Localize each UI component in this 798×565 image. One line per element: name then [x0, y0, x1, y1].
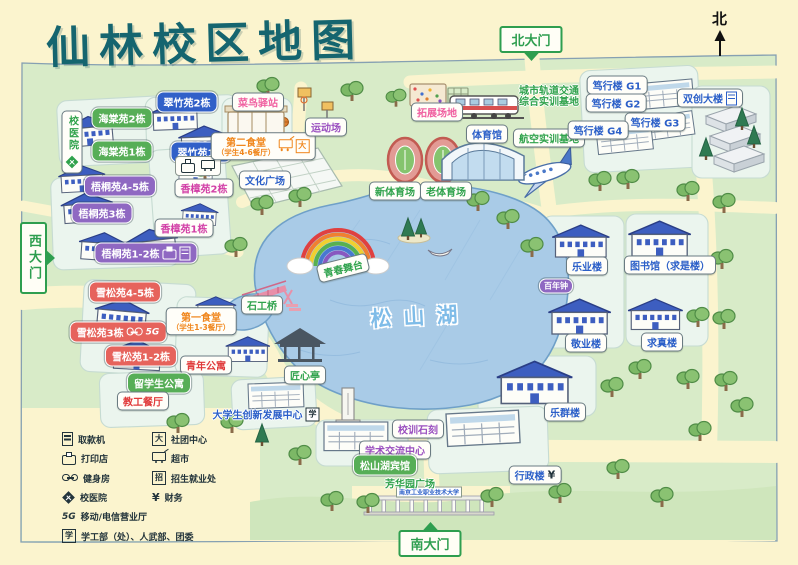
innovation-center-label: 大学生创新发展中心学 — [213, 407, 320, 422]
label-text: 松山湖宾馆 — [360, 458, 410, 473]
label-text: 校医院 — [65, 116, 80, 152]
admin-building-label: 行政楼¥ — [509, 466, 562, 485]
haitang-1-label: 海棠苑1栋 — [92, 141, 153, 162]
cart-icon — [278, 140, 292, 149]
xue-icon: 学 — [306, 407, 320, 421]
label-text: 新体育场 — [375, 184, 415, 199]
legend-label: 健身房 — [83, 472, 110, 485]
legend-label: 招生就业处 — [171, 472, 216, 485]
label-text: 菜鸟驿站 — [238, 95, 278, 110]
xiangzhang-2-label: 香樟苑2栋 — [175, 179, 234, 198]
printer-icon — [181, 163, 195, 173]
map-title: 仙林校区地图 — [45, 4, 365, 76]
wutong-12-label: 梧桐苑1-2栋 — [94, 243, 197, 264]
sports-ground-label: 运动场 — [305, 118, 347, 137]
rail-transit-base-label: 城市轨道交通综合实训基地 — [519, 82, 579, 109]
legend-item: 学学工部（处）、人武部、团委 — [62, 529, 262, 543]
label-text: 大学生创新发展中心 — [213, 407, 303, 422]
legend-item: 招招生就业处 — [152, 471, 262, 485]
xuesong-3-label: 雪松苑3栋5G — [70, 322, 167, 343]
label-text: 老体育场 — [426, 184, 466, 199]
legend-item: 超市 — [152, 452, 262, 465]
expansion-field-label: 拓展场地 — [411, 103, 463, 122]
label-text: 笃行楼 G2 — [592, 96, 641, 111]
west-gate: 西大门 — [20, 222, 47, 294]
gym-icon — [62, 474, 78, 483]
cart-icon — [201, 160, 215, 169]
gym-icon — [127, 328, 143, 337]
label-text: 笃行楼 G3 — [631, 115, 680, 130]
label-text: 图书馆（求是楼） — [630, 258, 710, 273]
label-text: 双创大楼 — [683, 91, 723, 106]
label-text: 教工餐厅 — [123, 394, 163, 409]
label-text: 留学生公寓 — [134, 376, 184, 391]
fiveg-icon: 5G — [146, 327, 160, 337]
club-icon: 大 — [152, 432, 166, 446]
new-stadium-label: 新体育场 — [369, 182, 421, 201]
label-text: 青春舞台 — [322, 256, 364, 280]
intl-student-dorm-label: 留学生公寓 — [127, 373, 191, 394]
gym-hall-label: 体育馆 — [466, 125, 508, 144]
xuesong-12-label: 雪松苑1-2栋 — [105, 346, 177, 367]
printer-icon — [163, 250, 177, 260]
legend-label: 移动/电信营业厅 — [81, 510, 147, 523]
duxing-g2-label: 笃行楼 G2 — [586, 94, 647, 113]
label-text: 香樟苑1栋 — [161, 221, 208, 236]
label-subtext: 综合实训基地 — [519, 97, 579, 109]
recruit-icon: 招 — [152, 471, 166, 485]
cainiao-station-label: 菜鸟驿站 — [232, 93, 284, 112]
songshanhu-hotel-label: 松山湖宾馆 — [353, 455, 417, 476]
library-label: 图书馆（求是楼） — [624, 256, 716, 275]
label-subtext: （学生4-6餐厅） — [217, 149, 276, 158]
north-arrow-icon — [714, 30, 726, 56]
canteen-2-label: 第二食堂（学生4-6餐厅）大 — [211, 132, 316, 160]
north-gate: 北大门 — [499, 26, 562, 53]
label-text: 笃行楼 G4 — [574, 123, 623, 138]
shigong-bridge-label: 石工桥 — [241, 296, 283, 315]
label-text: 运动场 — [311, 120, 341, 135]
shuangchuang-building-label: 双创大楼 — [677, 89, 743, 108]
label-text: 行政楼 — [515, 468, 545, 483]
xiangzhang-1-label: 香樟苑1栋 — [155, 219, 214, 238]
compass-north-label: 北 — [712, 8, 727, 29]
label-text: 石工桥 — [247, 298, 277, 313]
label-text: 笃行楼 G1 — [593, 78, 642, 93]
duxing-g3-label: 笃行楼 G3 — [625, 113, 686, 132]
legend-label: 打印店 — [81, 452, 108, 465]
staff-canteen-label: 教工餐厅 — [117, 392, 169, 411]
old-stadium-label: 老体育场 — [420, 182, 472, 201]
hospital-label: 校医院 — [62, 111, 83, 174]
cuizhu-2-label: 翠竹苑2栋 — [157, 92, 218, 113]
legend-label: 超市 — [171, 452, 189, 465]
map-legend: 取款机大社团中心打印店超市健身房招招生就业处校医院¥财务5G移动/电信营业厅学学… — [62, 432, 262, 543]
jiangxin-pavilion-label: 匠心亭 — [284, 366, 326, 385]
culture-square-label: 文化广场 — [239, 171, 291, 190]
label-text: 翠竹苑2栋 — [164, 95, 211, 110]
legend-item: 校医院 — [62, 491, 148, 504]
label-text: 求真楼 — [647, 335, 677, 350]
duxing-g4-label: 笃行楼 G4 — [568, 121, 629, 140]
legend-label: 取款机 — [78, 433, 105, 446]
campus-map: 仙林校区地图 松山湖 北大门 西大门 南大门 北 南京工业职业技术大学 海棠苑2… — [0, 0, 798, 565]
wutong-3-label: 梧桐苑3栋 — [72, 203, 133, 224]
west-gate-label: 西大门 — [26, 234, 41, 282]
club-icon: 大 — [295, 139, 309, 153]
legend-label: 社团中心 — [171, 433, 207, 446]
label-text: 乐业楼 — [572, 259, 602, 274]
hospital-icon — [62, 491, 75, 504]
label-text: 海棠苑1栋 — [99, 144, 146, 159]
legend-item: 健身房 — [62, 471, 148, 485]
label-text: 城市轨道交通 — [519, 82, 579, 97]
south-gate: 南大门 — [398, 530, 461, 557]
atm-icon — [726, 91, 737, 105]
bainianzhong-label: 百年钟 — [539, 279, 573, 294]
label-text: 百年钟 — [544, 281, 568, 292]
wutong-45-label: 梧桐苑4-5栋 — [84, 176, 156, 197]
label-text: 敬业楼 — [571, 336, 601, 351]
label-text: 匠心亭 — [290, 368, 320, 383]
label-text: 雪松苑1-2栋 — [112, 349, 170, 364]
label-text: 芳华园广场 — [385, 476, 435, 491]
leye-building-label: 乐业楼 — [566, 257, 608, 276]
atm-icon — [180, 246, 191, 260]
legend-item: ¥财务 — [152, 491, 262, 504]
youth-stage-label: 青春舞台 — [315, 252, 370, 283]
south-gate-label: 南大门 — [410, 538, 449, 553]
label-text: 香樟苑2栋 — [181, 181, 228, 196]
legend-item: 打印店 — [62, 452, 148, 465]
xue-icon: 学 — [62, 529, 76, 543]
jingye-building-label: 敬业楼 — [565, 334, 607, 353]
label-text: 雪松苑3栋 — [77, 325, 124, 340]
label-text: 海棠苑2栋 — [99, 111, 146, 126]
fanghua-square-label: 芳华园广场 — [385, 476, 435, 491]
youth-apartment-label: 青年公寓 — [180, 356, 232, 375]
label-text: 第一食堂 — [181, 309, 221, 324]
legend-item: 大社团中心 — [152, 432, 262, 446]
label-subtext: （学生1-3餐厅） — [172, 324, 231, 333]
cart-icon — [152, 452, 166, 461]
legend-item: 取款机 — [62, 432, 148, 446]
legend-item: 5G移动/电信营业厅 — [62, 510, 262, 523]
xuesong-45-label: 雪松苑4-5栋 — [89, 282, 161, 303]
duxing-g1-label: 笃行楼 G1 — [587, 76, 648, 95]
motto-stone-label: 校训石刻 — [392, 420, 444, 439]
canteen-1-label: 第一食堂（学生1-3餐厅） — [166, 307, 237, 335]
label-text: 梧桐苑1-2栋 — [101, 246, 159, 261]
label-text: 梧桐苑3栋 — [79, 206, 126, 221]
label-text: 体育馆 — [472, 127, 502, 142]
atm-icon — [62, 432, 73, 446]
label-text: 青年公寓 — [186, 358, 226, 373]
label-text: 第二食堂 — [226, 134, 266, 149]
haitang-2-label: 海棠苑2栋 — [92, 108, 153, 129]
label-text: 校训石刻 — [398, 422, 438, 437]
label-text: 拓展场地 — [417, 105, 457, 120]
lequn-building-label: 乐群楼 — [544, 403, 586, 422]
fiveg-icon: 5G — [62, 512, 76, 522]
legend-label: 校医院 — [80, 491, 107, 504]
finance-icon: ¥ — [152, 491, 160, 504]
qiuzhen-building-label: 求真楼 — [641, 333, 683, 352]
label-text: 乐群楼 — [550, 405, 580, 420]
hospital-icon — [66, 156, 79, 169]
label-text: 文化广场 — [245, 173, 285, 188]
finance-icon: ¥ — [548, 469, 556, 482]
legend-label: 财务 — [165, 491, 183, 504]
north-gate-label: 北大门 — [511, 34, 550, 49]
label-text: 雪松苑4-5栋 — [96, 285, 154, 300]
printer-icon — [62, 455, 76, 465]
legend-label: 学工部（处）、人武部、团委 — [81, 530, 194, 543]
compass: 北 — [712, 8, 727, 56]
label-text: 梧桐苑4-5栋 — [91, 179, 149, 194]
